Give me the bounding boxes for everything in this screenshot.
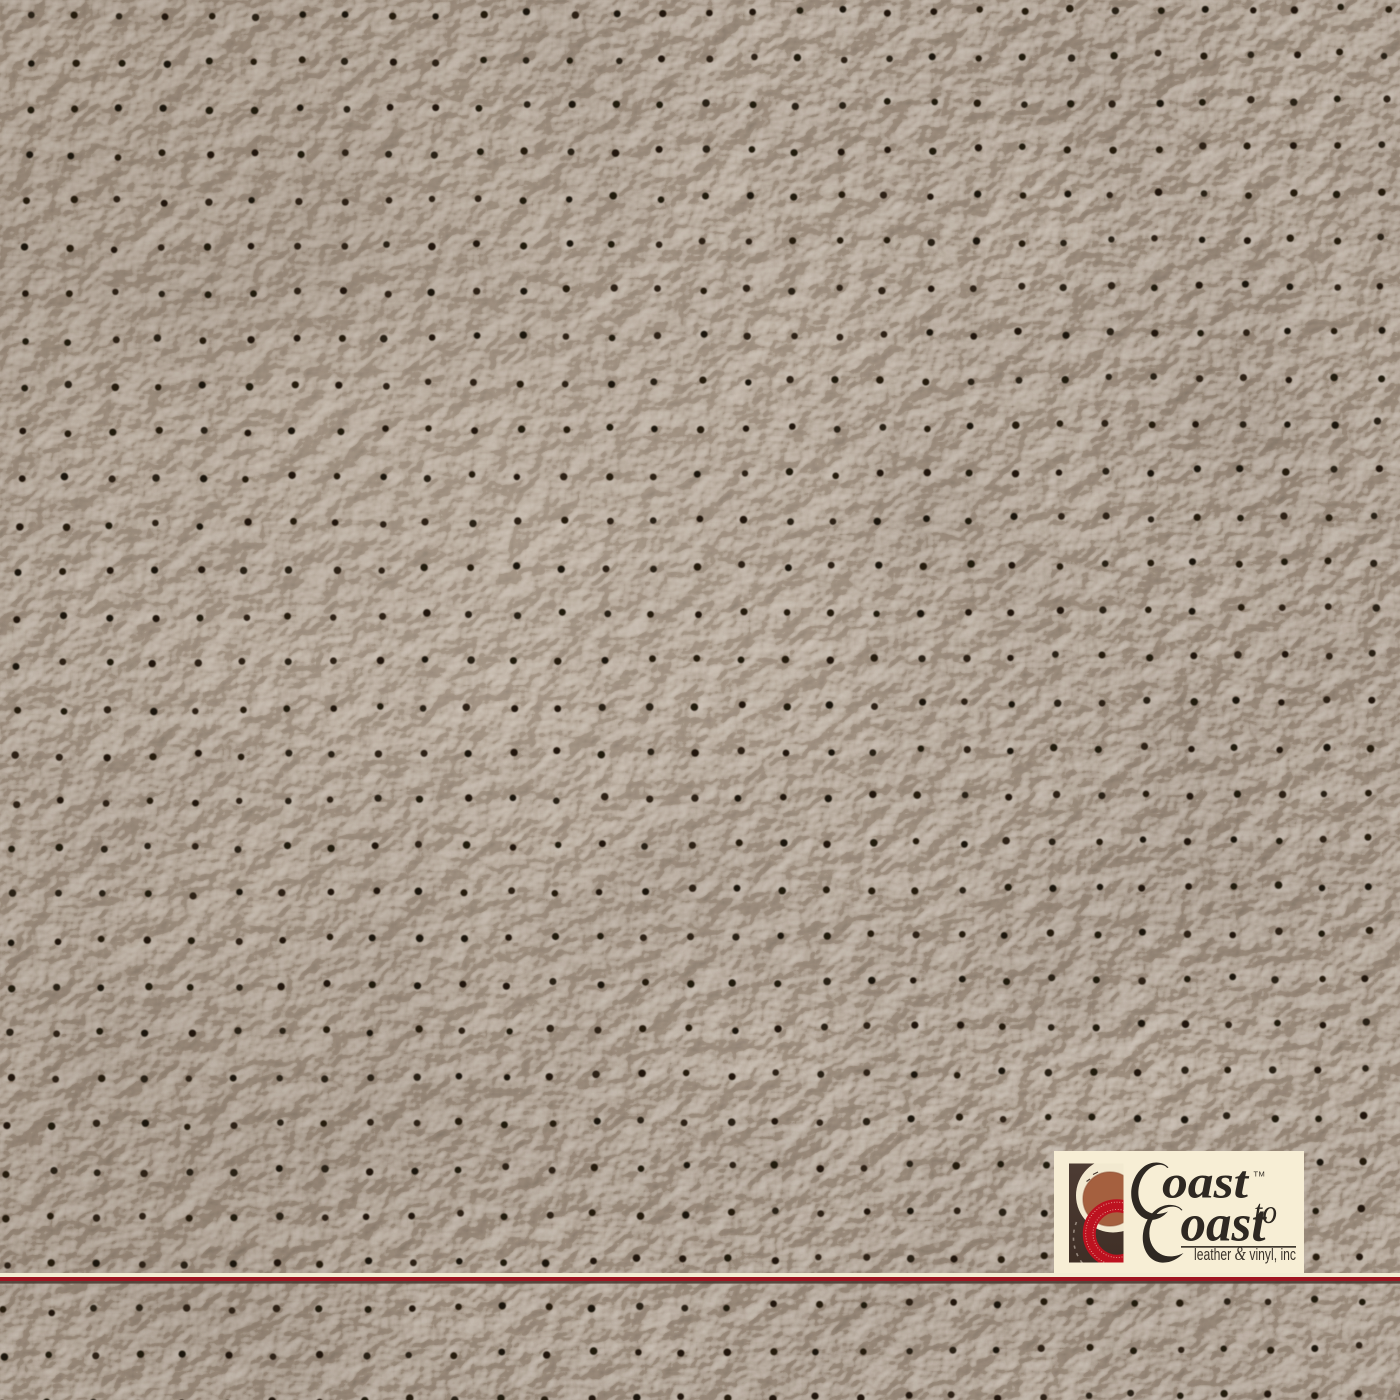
svg-text:TM: TM bbox=[1254, 1170, 1266, 1179]
svg-text:leather & vinyl, inc: leather & vinyl, inc bbox=[1194, 1243, 1296, 1265]
svg-text:oast: oast bbox=[1181, 1196, 1268, 1253]
